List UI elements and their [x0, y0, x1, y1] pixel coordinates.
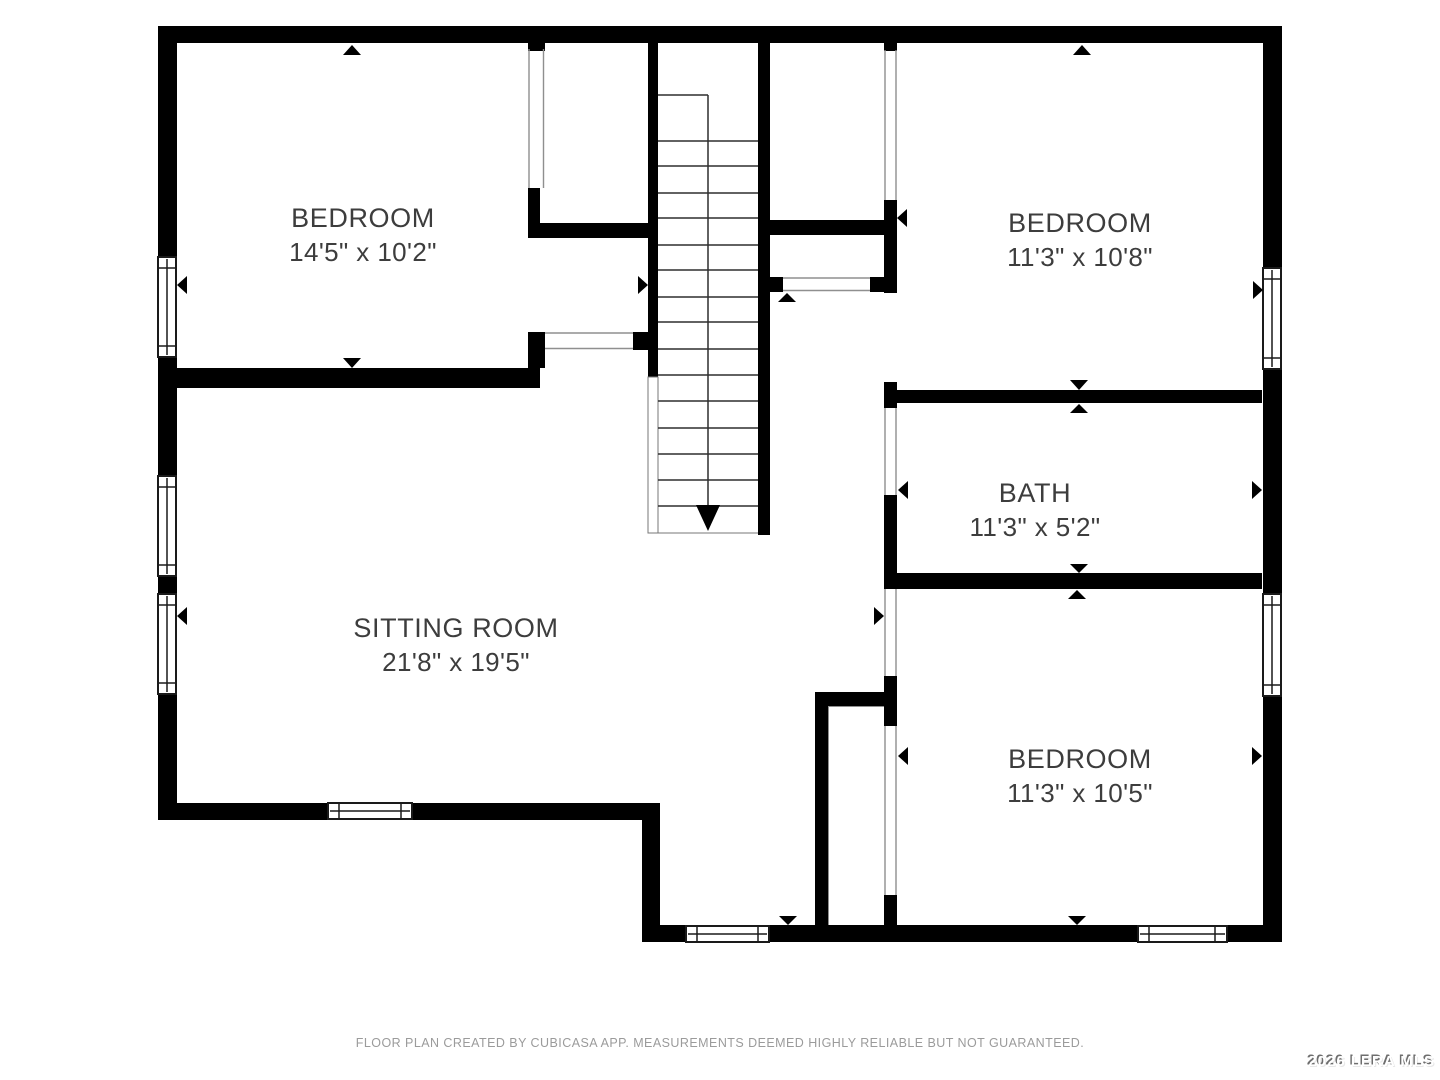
wall-right	[1263, 697, 1282, 942]
room-name: BEDROOM	[291, 204, 435, 234]
wall-bath-bottom	[884, 573, 1262, 589]
floor-plan-page: BEDROOM 14'5" x 10'2" BEDROOM 11'3" x 10…	[0, 0, 1440, 1080]
marker-bedroom1-down	[343, 358, 361, 368]
room-label-bedroom-top-left: BEDROOM 14'5" x 10'2"	[289, 204, 437, 266]
wall-bottom	[1228, 925, 1282, 942]
wall-closet-bottom	[528, 223, 658, 238]
window-bottom-hall	[686, 926, 769, 942]
wall-stairs-right	[758, 26, 770, 535]
wall-closet2-left	[815, 692, 828, 927]
wall-bedroom3-stub	[884, 895, 897, 927]
wall-bedroom3-left	[884, 676, 897, 726]
wall-bottom	[642, 925, 685, 942]
marker-bedroom1-right	[638, 276, 648, 294]
opening-bath-door	[885, 408, 896, 495]
marker-bedroom1-up	[343, 45, 361, 55]
room-dimensions: 11'3" x 10'8"	[1007, 243, 1153, 272]
marker-bedroom2-right	[1253, 281, 1263, 299]
room-dimensions: 11'3" x 10'5"	[1007, 779, 1153, 808]
wall-right	[1263, 26, 1282, 267]
room-label-bedroom-bottom-right: BEDROOM 11'3" x 10'5"	[1007, 745, 1153, 807]
wall-hall-top	[770, 220, 885, 235]
window-left-sitting-1	[158, 476, 176, 576]
staircase	[648, 95, 758, 533]
marker-sitting-down	[779, 916, 797, 925]
window-bottom-sitting	[328, 803, 412, 819]
room-name: BEDROOM	[1008, 209, 1152, 239]
windows	[158, 257, 1281, 942]
opening-closet2	[885, 726, 896, 895]
marker-bath-right	[1252, 481, 1262, 499]
wall-bottom-sitting	[413, 803, 660, 820]
window-bottom-bedroom3	[1138, 926, 1227, 942]
marker-sitting-up	[778, 293, 796, 302]
floor-plan-drawing	[0, 0, 1440, 1080]
wall-bath-top	[884, 390, 1262, 403]
closet2-inner-edge	[829, 707, 885, 926]
room-label-sitting-room: SITTING ROOM 21'8" x 19'5"	[353, 614, 558, 676]
room-dimensions: 11'3" x 5'2"	[969, 513, 1100, 542]
marker-bath-down	[1070, 564, 1088, 573]
room-dimensions: 21'8" x 19'5"	[382, 648, 530, 677]
marker-bedroom3-left	[898, 747, 908, 765]
marker-bedroom3-right	[1252, 747, 1262, 765]
room-name: BATH	[999, 479, 1071, 509]
marker-sitting-right	[874, 607, 884, 625]
wall-stairs-left	[648, 26, 658, 377]
room-name: SITTING ROOM	[353, 614, 558, 644]
wall-step	[642, 803, 660, 942]
marker-bedroom2-down	[1070, 380, 1088, 390]
window-right-bedroom3	[1263, 594, 1281, 696]
opening-bedroom3-door	[885, 589, 896, 676]
wall-bedroom1-jog	[528, 332, 545, 368]
marker-sitting-left	[177, 607, 187, 625]
room-name: BEDROOM	[1008, 745, 1152, 775]
wall-closet-stub	[528, 43, 545, 51]
wall-bedroom1-bottom	[158, 368, 540, 388]
room-label-bath: BATH 11'3" x 5'2"	[969, 479, 1100, 541]
stairs-down-arrow-icon	[696, 505, 720, 531]
marker-bedroom2-left	[897, 209, 907, 227]
footer-disclaimer: FLOOR PLAN CREATED BY CUBICASA APP. MEAS…	[356, 1036, 1084, 1050]
wall-bedroom2-stub	[884, 43, 897, 51]
opening-landing-door	[783, 278, 870, 291]
marker-bedroom3-up	[1068, 590, 1086, 599]
stair-treads	[658, 95, 758, 506]
opening-bedroom2-entry	[885, 50, 896, 200]
opening-bedroom1-door	[545, 333, 633, 349]
wall-door-stub	[770, 277, 783, 292]
window-left-sitting-2	[158, 594, 176, 694]
stair-open-rail	[648, 377, 658, 533]
wall-left	[158, 577, 177, 593]
wall-bottom	[770, 925, 1137, 942]
window-right-bedroom2	[1263, 268, 1281, 369]
marker-bedroom1-left	[177, 276, 187, 294]
wall-left	[158, 26, 177, 256]
room-dimensions: 14'5" x 10'2"	[289, 238, 437, 267]
wall-right	[1263, 370, 1282, 593]
wall-bottom-sitting	[158, 803, 327, 820]
room-label-bedroom-top-right: BEDROOM 11'3" x 10'8"	[1007, 209, 1153, 271]
marker-bath-up	[1070, 404, 1088, 413]
wall-left	[158, 695, 177, 820]
opening-closet1	[529, 49, 544, 188]
marker-bedroom2-up	[1073, 45, 1091, 55]
marker-bath-left	[898, 481, 908, 499]
mls-watermark: 2026 LERA MLS	[1308, 1053, 1435, 1070]
wall-door-stub	[633, 332, 648, 350]
door-openings	[529, 49, 896, 925]
marker-bedroom3-down	[1068, 916, 1086, 925]
wall-bedroom2-left	[884, 200, 897, 293]
window-left-bedroom1	[158, 257, 176, 357]
wall-bath-left	[884, 495, 897, 578]
wall-top	[158, 26, 1282, 43]
